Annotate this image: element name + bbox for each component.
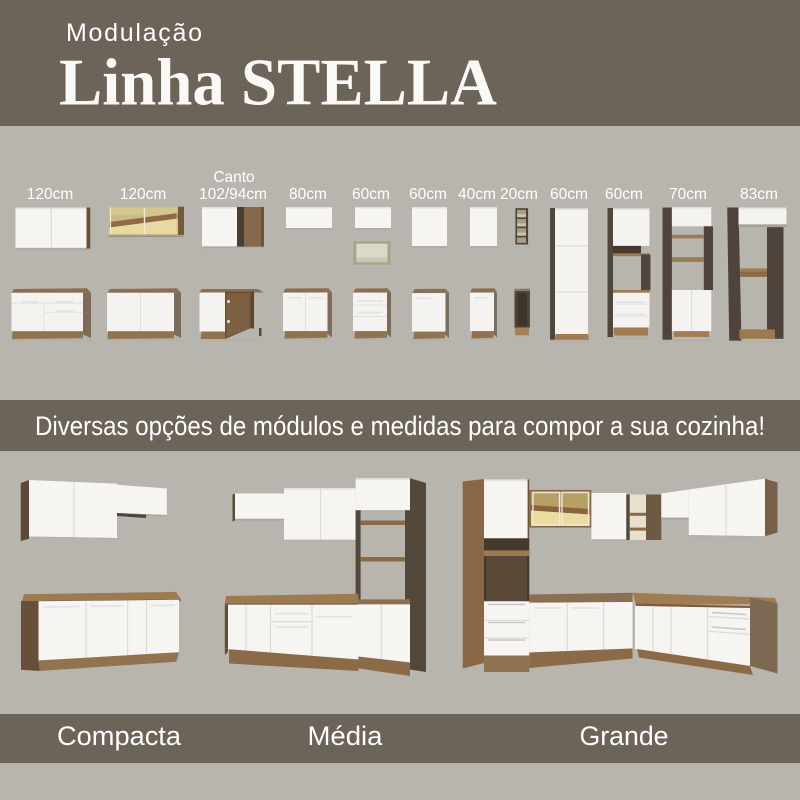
svg-text:Linha STELLA: Linha STELLA xyxy=(59,46,497,120)
svg-text:70cm: 70cm xyxy=(669,186,707,203)
svg-text:60cm: 60cm xyxy=(605,186,643,203)
svg-text:Canto: Canto xyxy=(213,169,254,186)
svg-text:40cm: 40cm xyxy=(458,186,496,203)
svg-text:83cm: 83cm xyxy=(740,186,778,203)
svg-text:60cm: 60cm xyxy=(352,186,390,203)
svg-text:Diversas opções de módulos e m: Diversas opções de módulos e medidas par… xyxy=(35,411,765,441)
svg-text:80cm: 80cm xyxy=(289,186,327,203)
svg-text:60cm: 60cm xyxy=(409,186,447,203)
svg-text:Média: Média xyxy=(308,721,384,751)
svg-text:60cm: 60cm xyxy=(550,186,588,203)
svg-text:20cm: 20cm xyxy=(500,186,538,203)
svg-text:Grande: Grande xyxy=(580,721,669,751)
svg-text:120cm: 120cm xyxy=(120,186,167,203)
svg-text:120cm: 120cm xyxy=(27,186,74,203)
svg-text:102/94cm: 102/94cm xyxy=(199,186,267,203)
svg-text:Compacta: Compacta xyxy=(57,721,182,751)
